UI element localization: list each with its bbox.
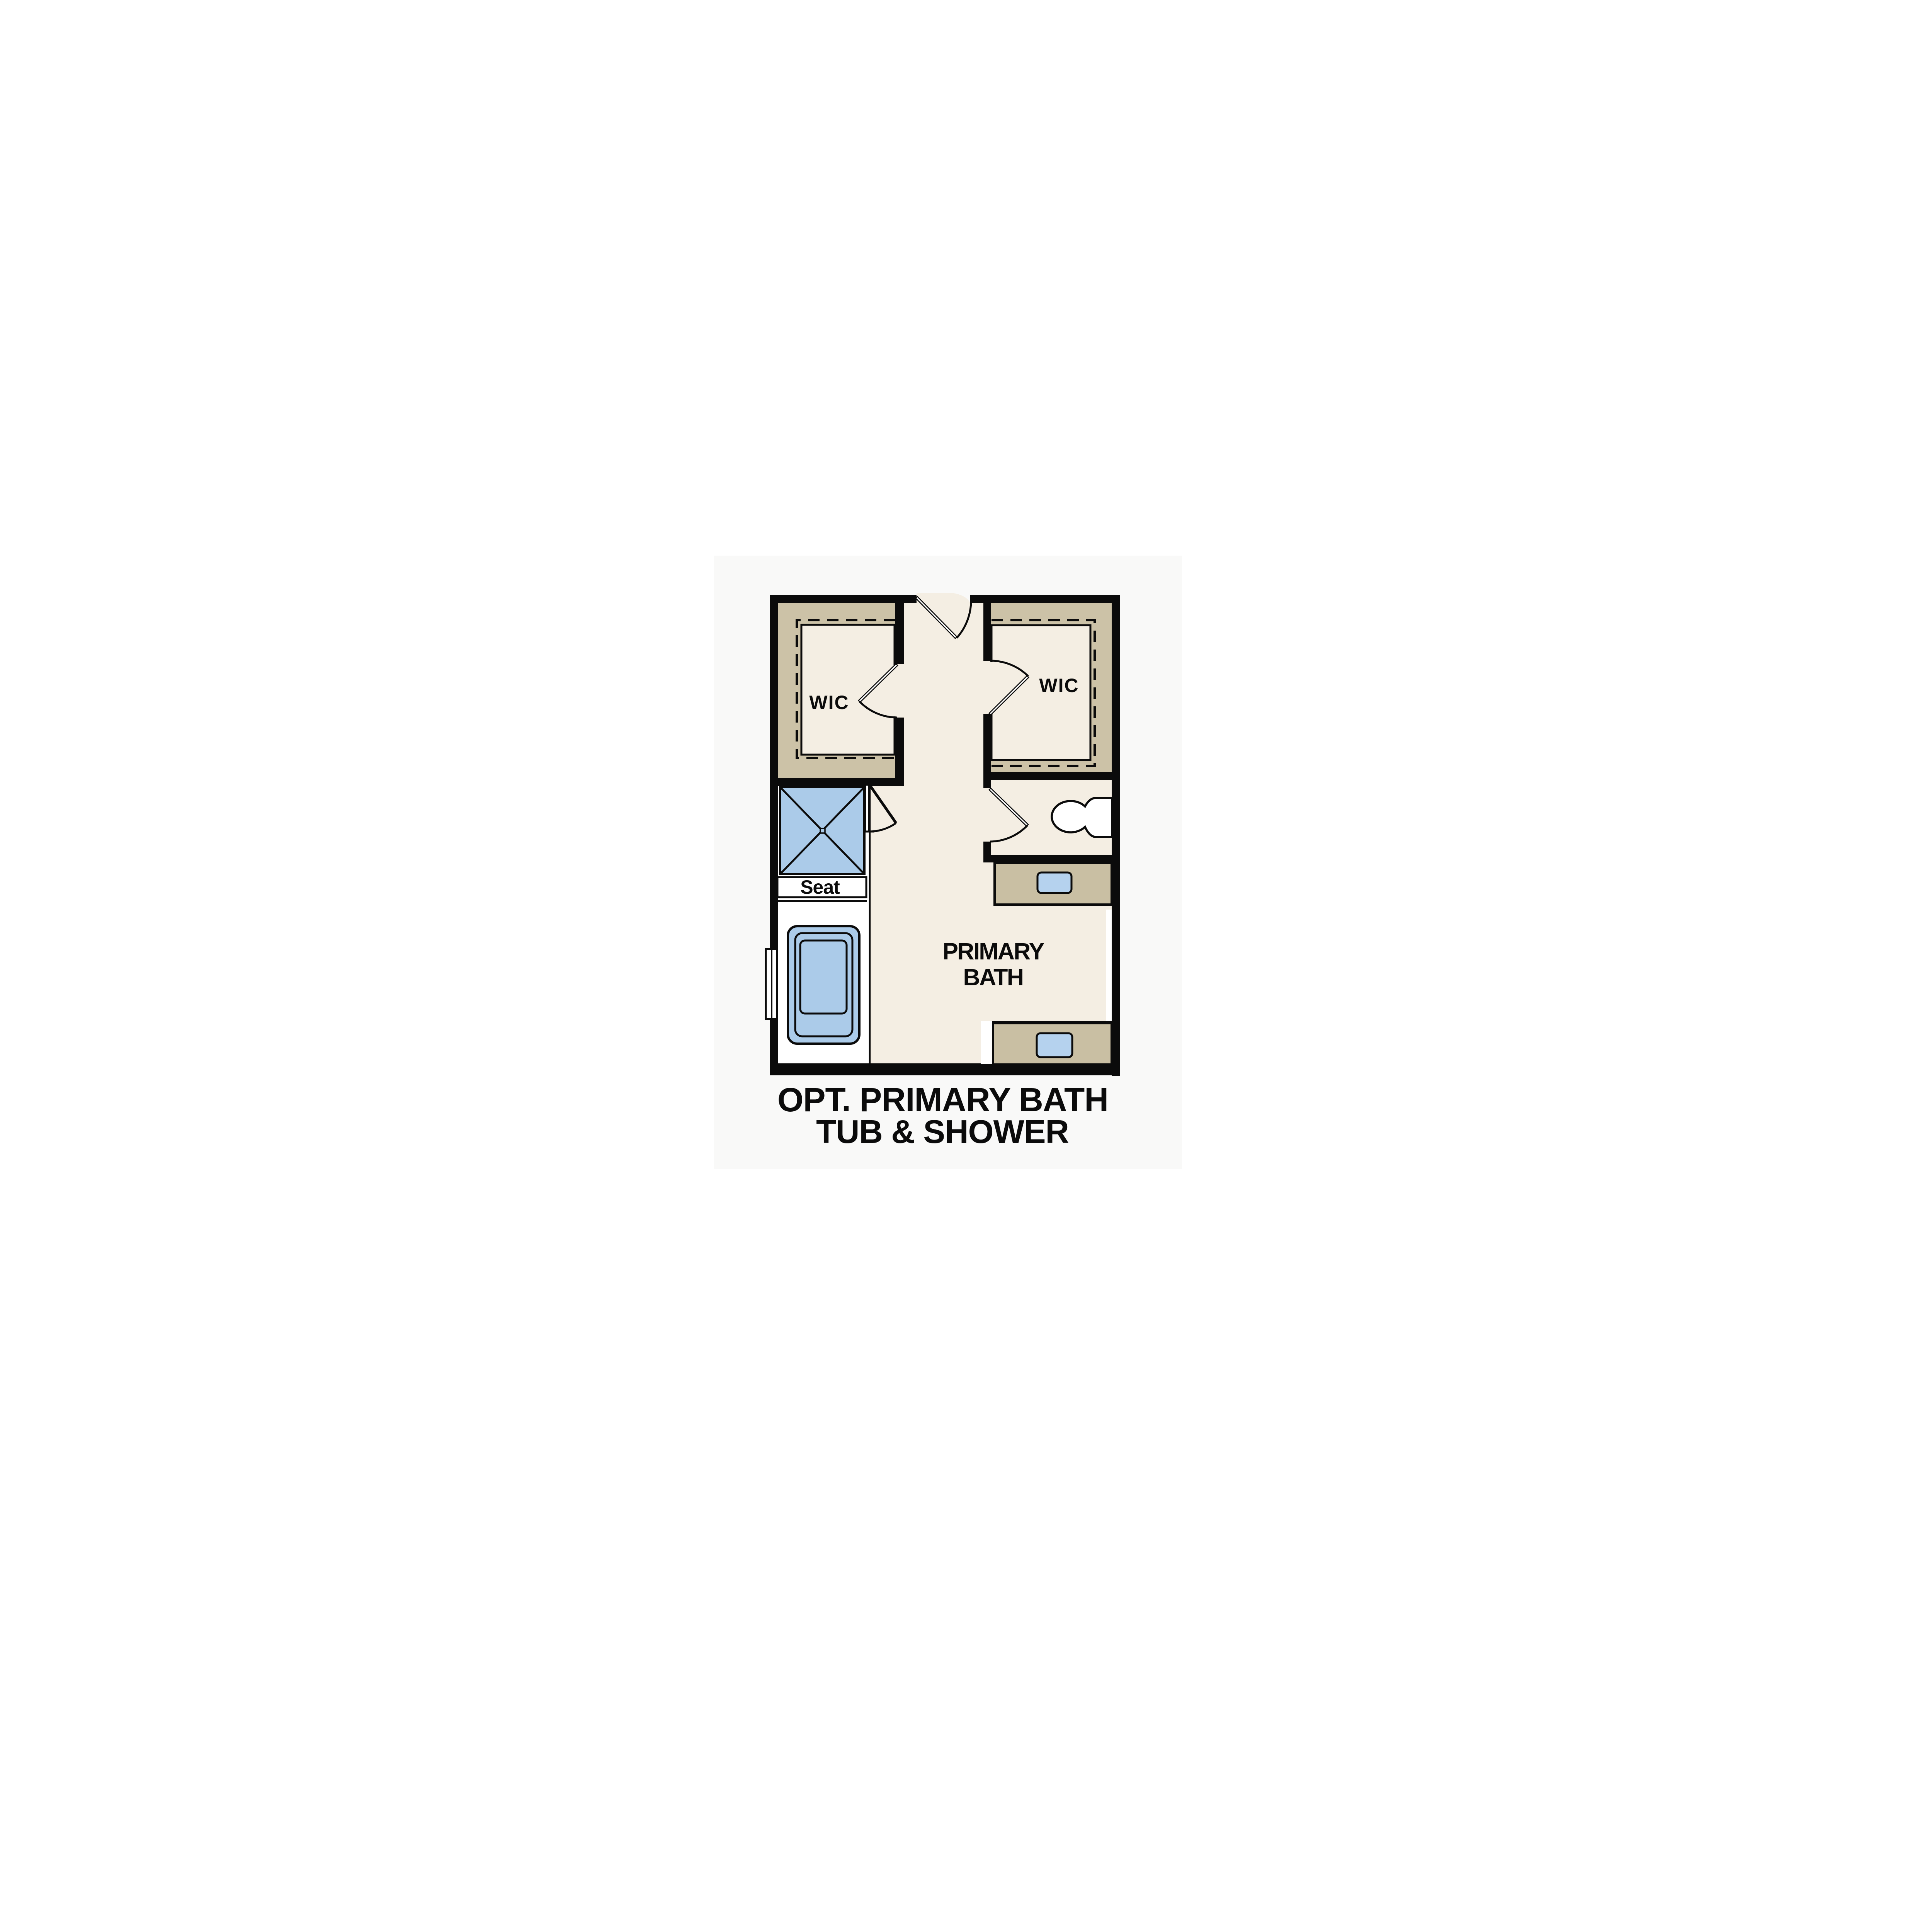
svg-text:TUB & SHOWER: TUB & SHOWER (816, 1114, 1069, 1150)
svg-text:Seat: Seat (800, 876, 840, 898)
svg-text:OPT. PRIMARY BATH: OPT. PRIMARY BATH (777, 1081, 1108, 1119)
svg-text:BATH: BATH (963, 964, 1023, 990)
svg-text:WIC: WIC (809, 692, 849, 713)
svg-text:PRIMARY: PRIMARY (942, 938, 1044, 964)
svg-text:WIC: WIC (1039, 675, 1079, 696)
